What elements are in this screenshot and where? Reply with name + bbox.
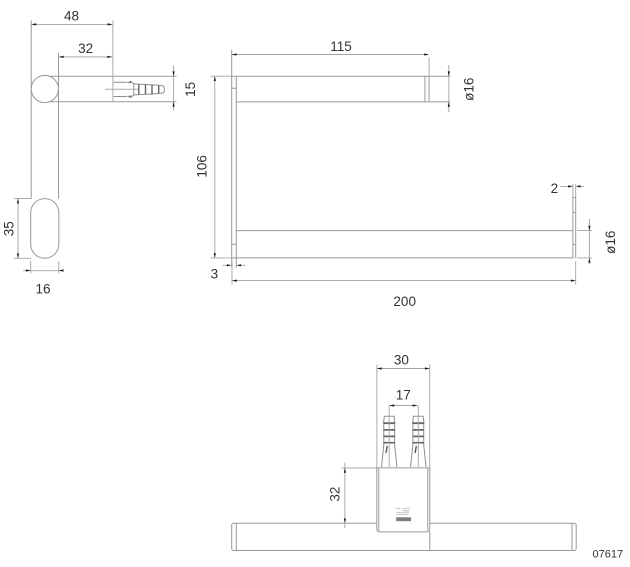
svg-text:2: 2	[551, 181, 559, 196]
svg-text:ø16: ø16	[603, 231, 618, 254]
svg-text:200: 200	[393, 294, 416, 309]
svg-text:48: 48	[64, 9, 79, 24]
svg-text:15: 15	[183, 82, 198, 97]
svg-text:32: 32	[78, 41, 93, 56]
svg-text:35: 35	[1, 221, 16, 236]
svg-text:32: 32	[328, 487, 343, 502]
svg-text:ø16: ø16	[462, 78, 477, 101]
svg-text:16: 16	[35, 282, 50, 297]
svg-text:106: 106	[195, 155, 210, 178]
svg-text:17: 17	[396, 388, 411, 403]
svg-text:115: 115	[330, 39, 352, 54]
svg-text:30: 30	[394, 353, 409, 368]
svg-text:3: 3	[211, 266, 219, 281]
svg-text:07617: 07617	[593, 549, 624, 561]
